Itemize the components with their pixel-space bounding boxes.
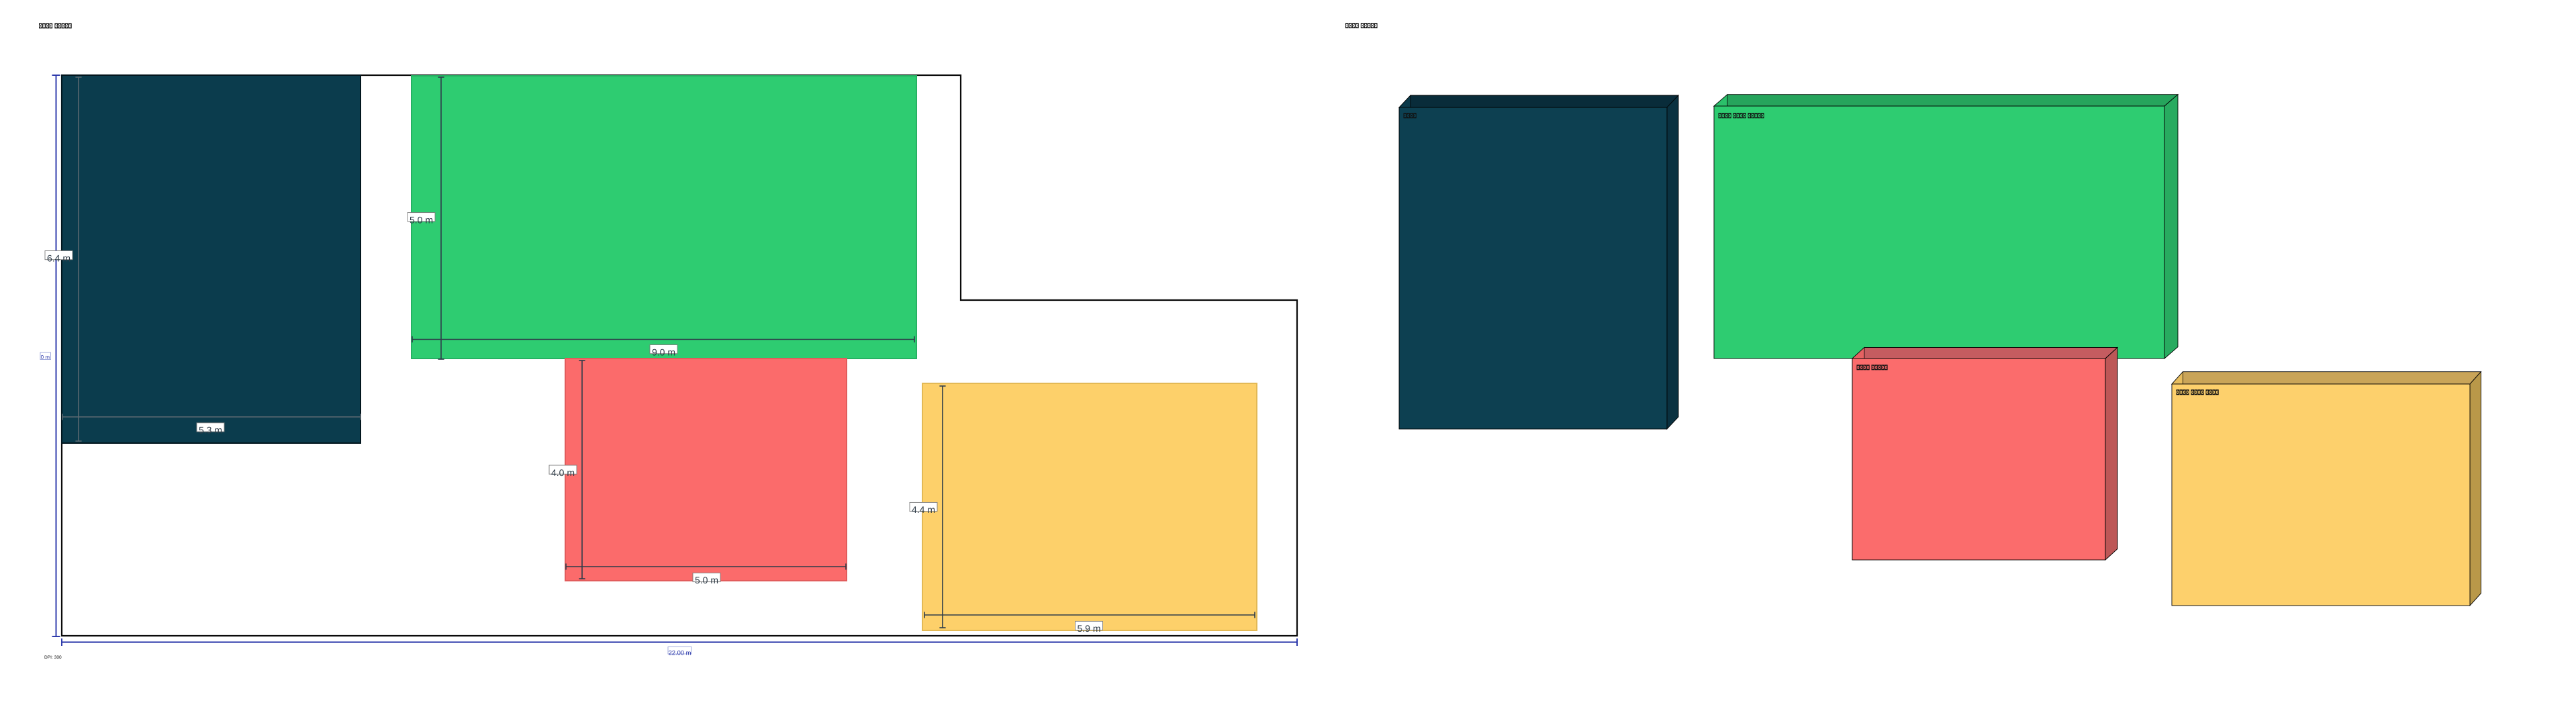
svg-text:5.3 m: 5.3 m bbox=[199, 425, 222, 436]
svg-text:4.0 m: 4.0 m bbox=[551, 467, 575, 478]
svg-text:5.0 m: 5.0 m bbox=[410, 214, 433, 225]
svg-text:0 m: 0 m bbox=[41, 354, 50, 361]
svg-text:6.4 m: 6.4 m bbox=[47, 252, 70, 263]
svg-text:4.4 m: 4.4 m bbox=[912, 504, 935, 515]
svg-text:22.00 m: 22.00 m bbox=[669, 649, 691, 657]
svg-text:5.9 m: 5.9 m bbox=[1077, 623, 1100, 634]
svg-text:5.0 m: 5.0 m bbox=[695, 575, 718, 585]
svg-text:DPI: 300: DPI: 300 bbox=[44, 655, 62, 660]
svg-text:9.0 m: 9.0 m bbox=[652, 346, 675, 357]
